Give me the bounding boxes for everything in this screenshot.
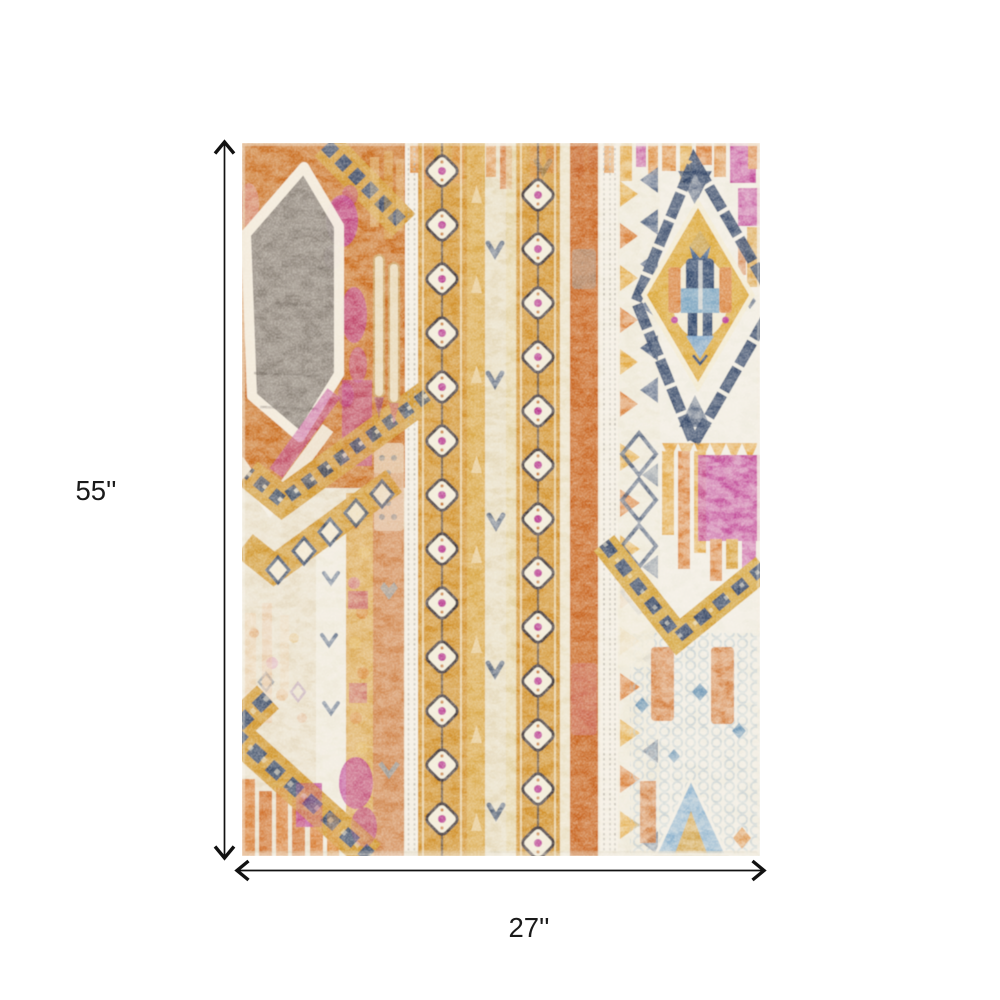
svg-text:55'': 55'': [75, 475, 116, 506]
svg-text:27'': 27'': [508, 912, 549, 943]
